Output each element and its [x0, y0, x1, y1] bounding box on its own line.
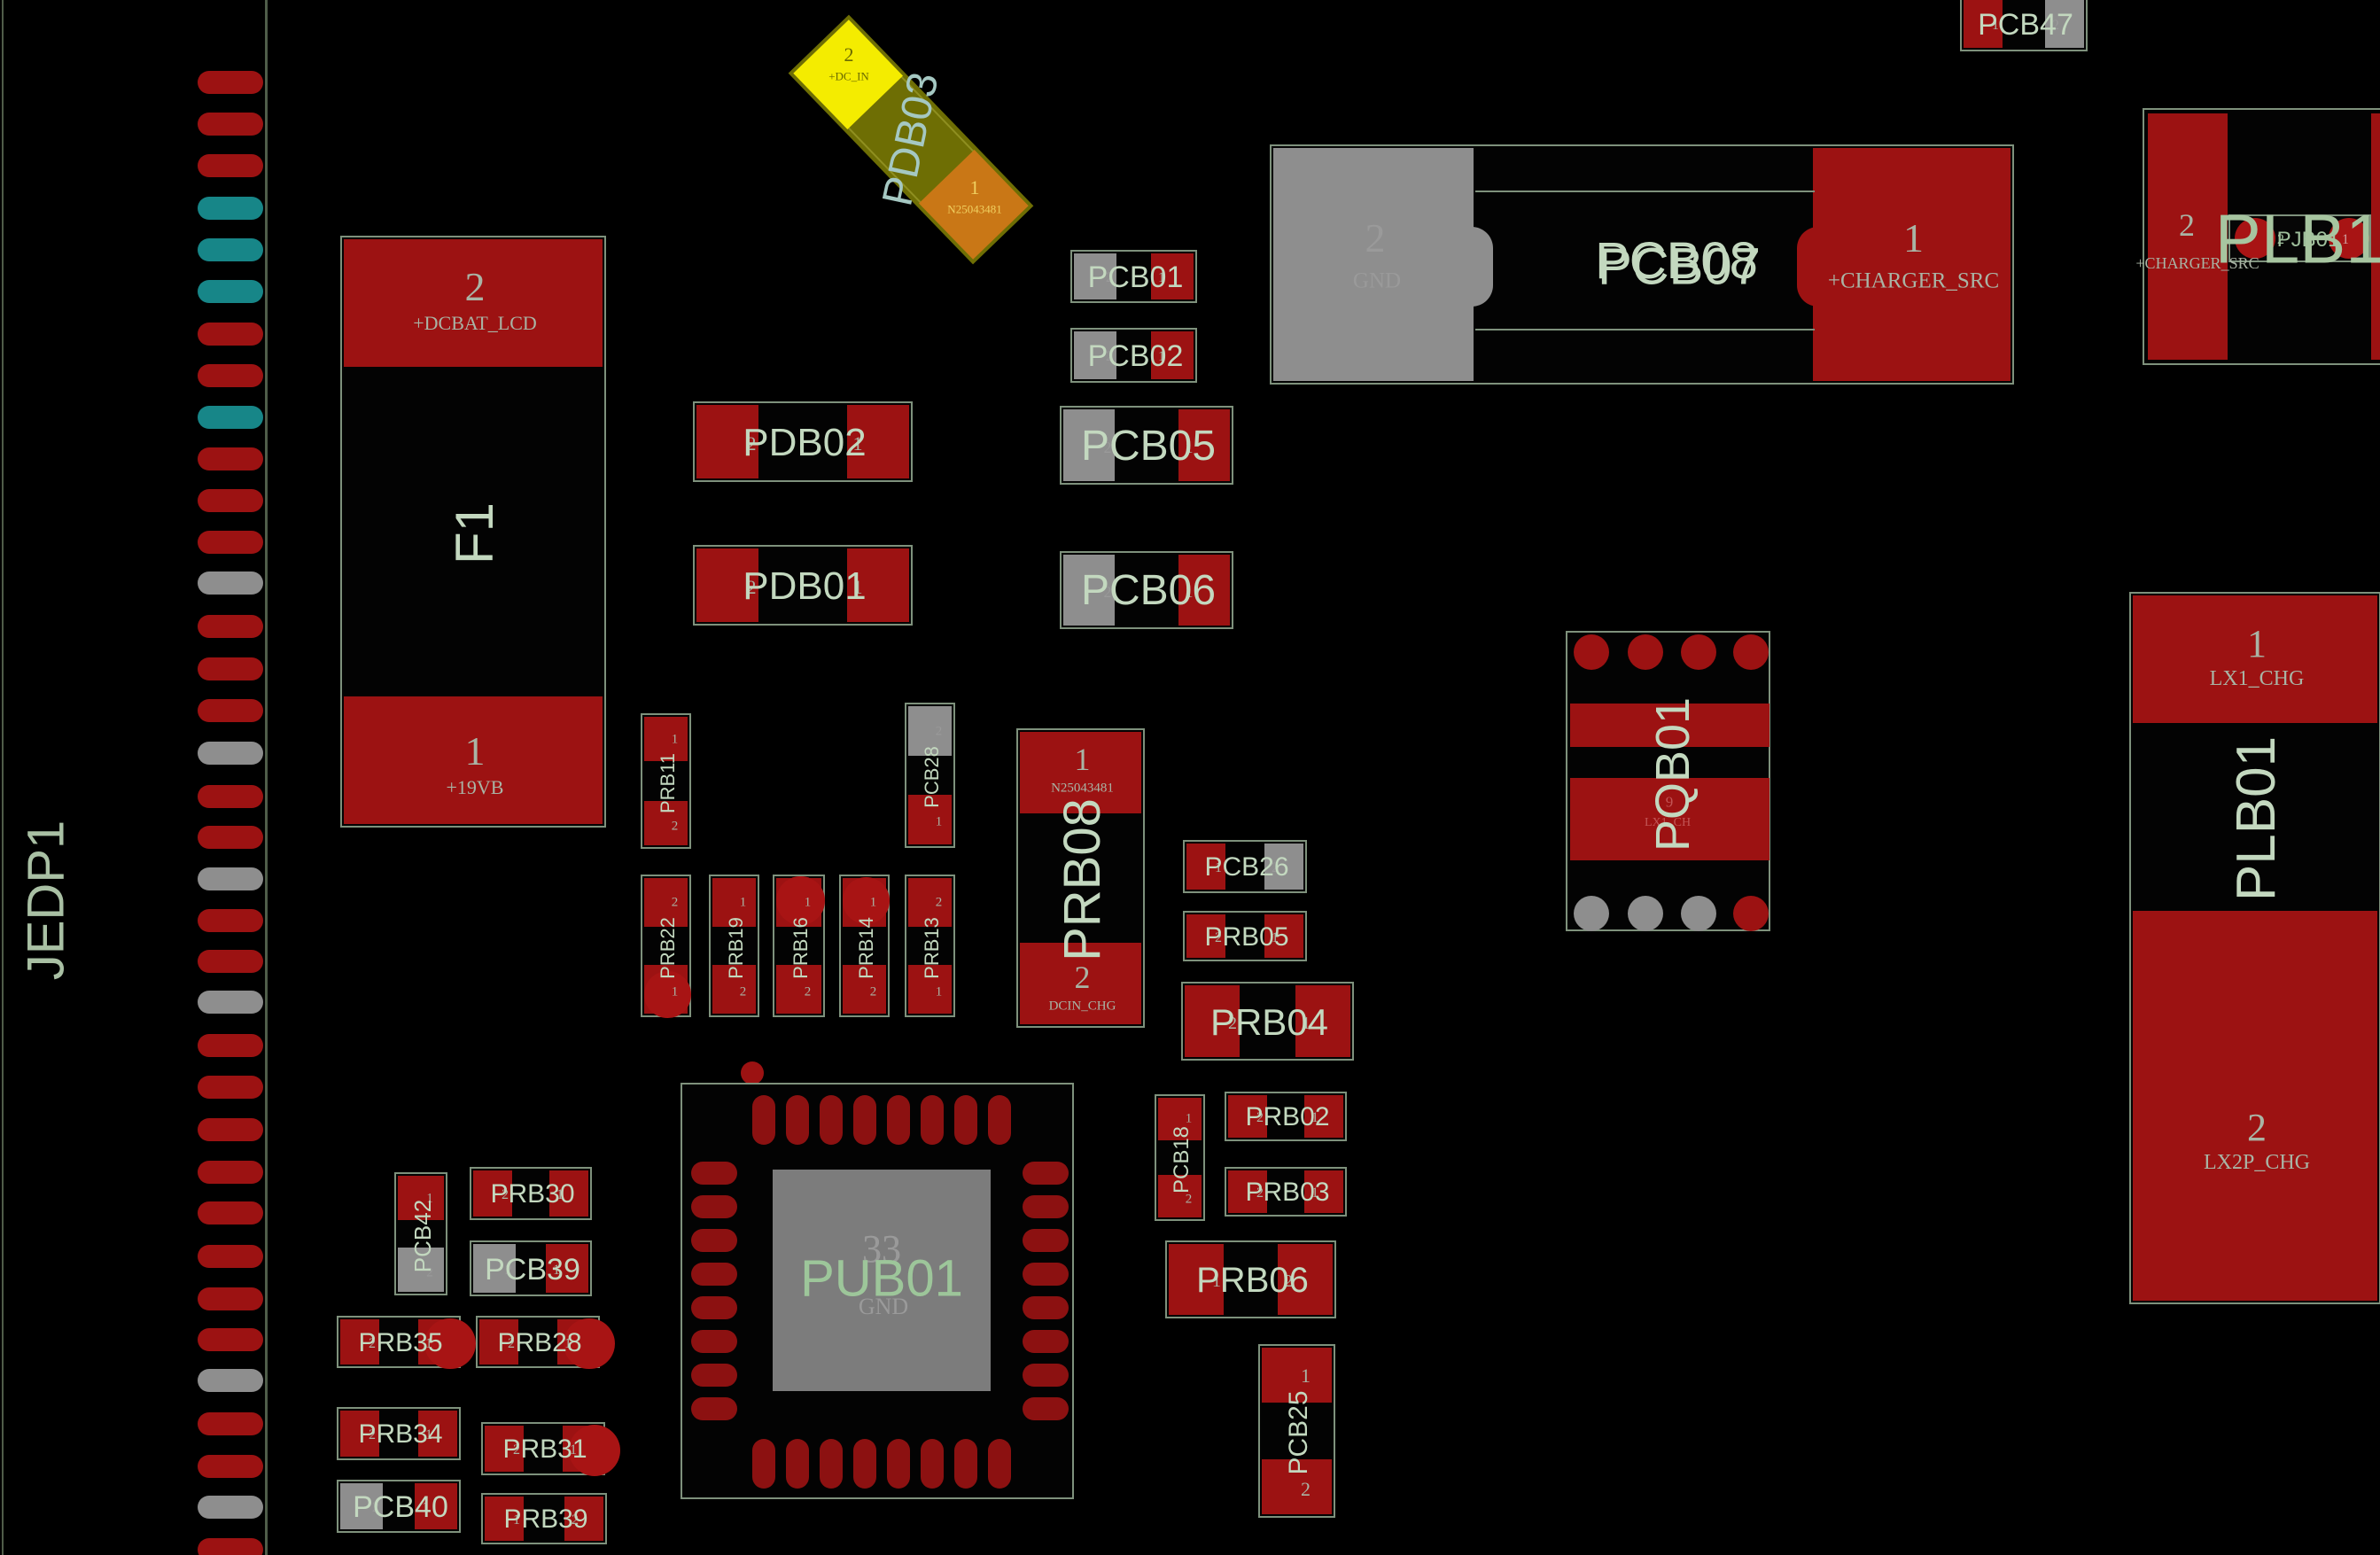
pin-number: 1 [672, 985, 679, 999]
designator-label: PRB22 [658, 917, 678, 979]
chip-pad-right[interactable] [1023, 1397, 1069, 1420]
round-pad-top[interactable] [1733, 634, 1769, 670]
pin-number: LX1_CHG [2210, 668, 2305, 689]
component-PRB02[interactable]: 21PRB02 [1225, 1092, 1347, 1141]
designator-label: PCB47 [1978, 10, 2073, 40]
connector-pin[interactable] [198, 1076, 263, 1099]
round-pad-top[interactable] [1681, 634, 1716, 670]
chip-pad-right[interactable] [1023, 1195, 1069, 1218]
pin-number: +CHARGER_SRC [1828, 269, 1999, 292]
connector-pin[interactable] [198, 785, 263, 808]
connector-pin[interactable] [198, 826, 263, 849]
component-PRB16[interactable]: 12PRB16 [773, 875, 825, 1017]
pin-number: 2 [2179, 209, 2195, 241]
pad-bump-left [1472, 227, 1493, 307]
component-PDB01[interactable]: 21PDB01 [693, 545, 913, 626]
component-PRB14[interactable]: 12PRB14 [839, 875, 890, 1017]
designator-label: PRB02 [1245, 1104, 1329, 1131]
component-PRB35[interactable]: 21PRB35 [337, 1316, 461, 1368]
connector-pin[interactable] [198, 1161, 263, 1184]
pin-number: 2 [844, 45, 854, 65]
pin-number: +19VB [447, 778, 504, 797]
pad-right[interactable] [1813, 148, 2011, 381]
component-PCB25[interactable]: 12PCB25 [1258, 1344, 1335, 1518]
connector-pin[interactable] [198, 1245, 263, 1268]
pin-number: 1 [1186, 1113, 1193, 1126]
connector-pin[interactable] [198, 615, 263, 638]
component-PCB08[interactable]: 2GND1+CHARGER_SRCPCB07PCB08 [1270, 144, 2014, 385]
designator-label: PCB02 [1088, 341, 1184, 371]
component-PRB28[interactable]: 21PRB28 [476, 1316, 600, 1368]
component-PRB22[interactable]: 21PRB22 [641, 875, 691, 1017]
chip-pad-bottom[interactable] [921, 1439, 944, 1489]
component-PCB18[interactable]: 12PCB18 [1155, 1094, 1205, 1221]
connector-pin[interactable] [198, 154, 263, 177]
connector-pin[interactable] [198, 1369, 263, 1392]
designator-label: PRB05 [1204, 924, 1288, 951]
pin-number: 1 [1075, 743, 1091, 775]
connector-pin[interactable] [198, 1118, 263, 1141]
designator-label: PCB42 [411, 1199, 434, 1271]
component-PRB06[interactable]: 12PRB06 [1165, 1240, 1336, 1318]
pin-number: 1 [2247, 625, 2267, 664]
component-PRB08[interactable]: 1N250434812DCIN_CHGPRB08 [1016, 728, 1145, 1028]
connector-pin[interactable] [198, 1287, 263, 1310]
chip-pad-top[interactable] [988, 1095, 1011, 1145]
chip-pad-right[interactable] [1023, 1229, 1069, 1252]
connector-label: JEDP1 [17, 820, 76, 981]
pin-number: +DC_IN [828, 71, 869, 82]
component-PRB13[interactable]: 21PRB13 [905, 875, 955, 1017]
connector-pin[interactable] [198, 1496, 263, 1519]
pin-number: 2 [870, 985, 877, 999]
chip-pad-top[interactable] [752, 1095, 775, 1145]
chip-pad-right[interactable] [1023, 1330, 1069, 1353]
pin-number: 2 [1186, 1193, 1193, 1206]
connector-pin[interactable] [198, 238, 263, 261]
connector-pin[interactable] [198, 699, 263, 722]
designator-label: PCB01 [1088, 262, 1184, 292]
pin-number: 2 [805, 985, 812, 999]
component-PCB42[interactable]: 12PCB42 [394, 1172, 447, 1295]
designator-label: PCB26 [1204, 854, 1288, 881]
connector-pin[interactable] [198, 197, 263, 220]
via-dot[interactable] [741, 1061, 764, 1085]
chip-pad-bottom[interactable] [988, 1439, 1011, 1489]
designator-label: PRB04 [1210, 1004, 1328, 1041]
chip-pad-top[interactable] [954, 1095, 977, 1145]
connector-pin[interactable] [198, 406, 263, 429]
chip-pad-right[interactable] [1023, 1162, 1069, 1185]
designator-label: PCB25 [1286, 1390, 1312, 1474]
chip-pad-left[interactable] [691, 1263, 737, 1286]
designator-label: PCB40 [353, 1492, 448, 1522]
connector-pin[interactable] [198, 113, 263, 136]
designator-label: PUB01 [800, 1248, 963, 1308]
pin-number: 1 [1903, 218, 1924, 259]
designator-label: PRB14 [857, 917, 876, 979]
round-pad-bottom[interactable] [1733, 896, 1769, 931]
connector-pin[interactable] [198, 489, 263, 512]
component-PRB39[interactable]: 12PRB39 [481, 1493, 607, 1544]
designator-label: PRB19 [727, 917, 746, 979]
connector-pin[interactable] [198, 950, 263, 973]
component-PCB28[interactable]: 21PCB28 [905, 703, 955, 848]
designator-label: PRB16 [791, 917, 811, 979]
pin-number: +DCBAT_LCD [413, 314, 537, 333]
component-PLB11[interactable]: 2+CHARGER_SRC21PJB01PLB11 [2143, 108, 2380, 365]
pin-number: 1 [936, 985, 943, 999]
board-canvas[interactable]: JEDP112PCB4721PCB0121PCB0221PDB0221PDB01… [0, 0, 2380, 1555]
component-PRB30[interactable]: 21PRB30 [470, 1167, 592, 1220]
pad-left[interactable] [1273, 148, 1474, 381]
designator-label: PRB39 [503, 1506, 587, 1533]
connector-pin[interactable] [198, 1328, 263, 1351]
pin-number: 1 [672, 733, 679, 746]
designator-label: PDB01 [743, 567, 866, 606]
round-pad-top[interactable] [1574, 634, 1609, 670]
chip-pad-left[interactable] [691, 1229, 737, 1252]
chip-pad-top[interactable] [820, 1095, 843, 1145]
pin-number: N25043481 [947, 204, 1001, 215]
pin-number: 2 [740, 985, 747, 999]
chip-pad-bottom[interactable] [853, 1439, 876, 1489]
connector-pin[interactable] [198, 742, 263, 765]
designator-label: PRB28 [497, 1330, 581, 1357]
pin-number: 2 [2247, 1108, 2267, 1147]
chip-pad-left[interactable] [691, 1397, 737, 1420]
pin-number: N25043481 [1051, 781, 1114, 795]
designator-label: PCB28 [922, 746, 942, 808]
designator-label: PRB30 [490, 1181, 574, 1208]
designator-label: PRB35 [358, 1330, 442, 1357]
pin-number: 1 [805, 897, 812, 910]
connector-pin[interactable] [198, 571, 263, 595]
pin-number: DCIN_CHG [1049, 999, 1116, 1013]
component-PDB02[interactable]: 21PDB02 [693, 401, 913, 482]
pin-number: 2 [1075, 961, 1091, 993]
component-PQB01[interactable]: 9LX1_CHPQB01 [1566, 631, 1770, 931]
round-pad-bottom[interactable] [1574, 896, 1609, 931]
designator-label: PRB08 [1057, 798, 1108, 961]
board-edge-line [2, 0, 4, 1555]
component-PCB39[interactable]: 21PCB39 [470, 1240, 592, 1296]
component-PRB03[interactable]: 21PRB03 [1225, 1167, 1347, 1217]
designator-label: PRB03 [1245, 1179, 1329, 1206]
connector-pin[interactable] [198, 280, 263, 303]
component-PCB26[interactable]: 12PCB26 [1183, 840, 1307, 893]
designator-label: PCB18 [1171, 1125, 1193, 1193]
overlap-outline-line [1475, 190, 1815, 192]
connector-pin[interactable] [198, 657, 263, 680]
chip-pad-right[interactable] [1023, 1296, 1069, 1319]
connector-pin[interactable] [198, 1538, 263, 1555]
connector-pin[interactable] [198, 867, 263, 890]
designator-label: PCB06 [1081, 570, 1216, 612]
designator-label: PLB11 [2215, 199, 2380, 280]
connector-pin[interactable] [198, 1412, 263, 1435]
connector-pin[interactable] [198, 991, 263, 1014]
component-PRB34[interactable]: 21PRB34 [337, 1407, 461, 1460]
designator-label: PCB39 [485, 1255, 580, 1285]
designator-label: PQB01 [1649, 696, 1697, 851]
pin-number: 1 [740, 897, 747, 910]
designator-label: PDB02 [743, 424, 866, 463]
connector-pin[interactable] [198, 1034, 263, 1057]
component-PCB47[interactable]: 12PCB47 [1960, 0, 2088, 51]
chip-pad-left[interactable] [691, 1162, 737, 1185]
chip-pad-top[interactable] [786, 1095, 809, 1145]
connector-pin[interactable] [198, 531, 263, 554]
component-PCB40[interactable]: 21PCB40 [337, 1480, 461, 1533]
overlap-outline-line [1475, 329, 1815, 330]
pad-bump-right [1797, 227, 1818, 307]
connector-pin[interactable] [198, 323, 263, 346]
pin-number: GND [1353, 269, 1401, 292]
round-pad-bottom[interactable] [1681, 896, 1716, 931]
round-pad-top[interactable] [1628, 634, 1663, 670]
chip-pad-bottom[interactable] [954, 1439, 977, 1489]
pin-number: 1 [870, 897, 877, 910]
component-PRB31[interactable]: 21PRB31 [481, 1422, 605, 1475]
pin-number: 1 [936, 816, 943, 829]
pin-number: 2 [465, 267, 486, 307]
chip-pad-left[interactable] [691, 1330, 737, 1353]
chip-pad-right[interactable] [1023, 1364, 1069, 1387]
component-F1[interactable]: 2+DCBAT_LCD1+19VBF1 [340, 236, 606, 828]
component-PUB01[interactable]: 3333GNDPUB01 [681, 1083, 1074, 1499]
chip-pad-bottom[interactable] [786, 1439, 809, 1489]
component-PRB11[interactable]: 12PRB11 [641, 713, 691, 849]
pin-number: 2 [936, 897, 943, 910]
chip-pad-bottom[interactable] [820, 1439, 843, 1489]
pin-number: 1 [465, 731, 486, 772]
chip-pad-top[interactable] [853, 1095, 876, 1145]
component-PCB05[interactable]: 21PCB05 [1060, 406, 1233, 485]
pin-number: LX2P_CHG [2204, 1152, 2310, 1173]
component-PCB02[interactable]: 21PCB02 [1070, 328, 1197, 383]
designator-label: PRB31 [502, 1436, 587, 1463]
chip-pad-left[interactable] [691, 1364, 737, 1387]
connector-pin[interactable] [198, 1455, 263, 1478]
connector-pin[interactable] [198, 1201, 263, 1225]
pin-number: 2 [672, 820, 679, 833]
designator-label: PRB13 [922, 917, 942, 979]
component-PRB19[interactable]: 12PRB19 [709, 875, 759, 1017]
connector-pin[interactable] [198, 71, 263, 94]
chip-pad-bottom[interactable] [752, 1439, 775, 1489]
component-PCB01[interactable]: 21PCB01 [1070, 250, 1197, 303]
pin-number: 2 [1365, 218, 1386, 259]
component-PCB06[interactable]: 21PCB06 [1060, 551, 1233, 629]
pin-number: 2 [1301, 1480, 1311, 1499]
component-PRB05[interactable]: 21PRB05 [1183, 911, 1307, 961]
component-PLB01[interactable]: 1LX1_CHG2LX2P_CHGPLB01 [2129, 592, 2380, 1304]
connector-pin[interactable] [198, 364, 263, 387]
designator-label: F1 [448, 502, 502, 564]
designator-label: PRB11 [658, 752, 678, 812]
pin-number: 1 [970, 178, 980, 198]
chip-pad-bottom[interactable] [887, 1439, 910, 1489]
board-edge-line [265, 0, 268, 1555]
chip-pad-right[interactable] [1023, 1263, 1069, 1286]
designator-label: PCB05 [1081, 425, 1216, 468]
designator-label: PLB01 [2229, 736, 2284, 901]
chip-pad-top[interactable] [887, 1095, 910, 1145]
designator-label: PRB34 [358, 1421, 442, 1448]
chip-pad-left[interactable] [691, 1195, 737, 1218]
round-pad-bottom[interactable] [1628, 896, 1663, 931]
pin-number: 2 [672, 897, 679, 910]
designator-label: PCB08 [1595, 236, 1758, 287]
connector-pin[interactable] [198, 447, 263, 470]
designator-label: PRB06 [1196, 1263, 1309, 1298]
pin-number: 1 [1301, 1366, 1311, 1386]
pin-number: 2 [936, 725, 943, 738]
component-PRB04[interactable]: 21PRB04 [1181, 982, 1354, 1061]
connector-pin[interactable] [198, 909, 263, 932]
chip-pad-left[interactable] [691, 1296, 737, 1319]
chip-pad-top[interactable] [921, 1095, 944, 1145]
